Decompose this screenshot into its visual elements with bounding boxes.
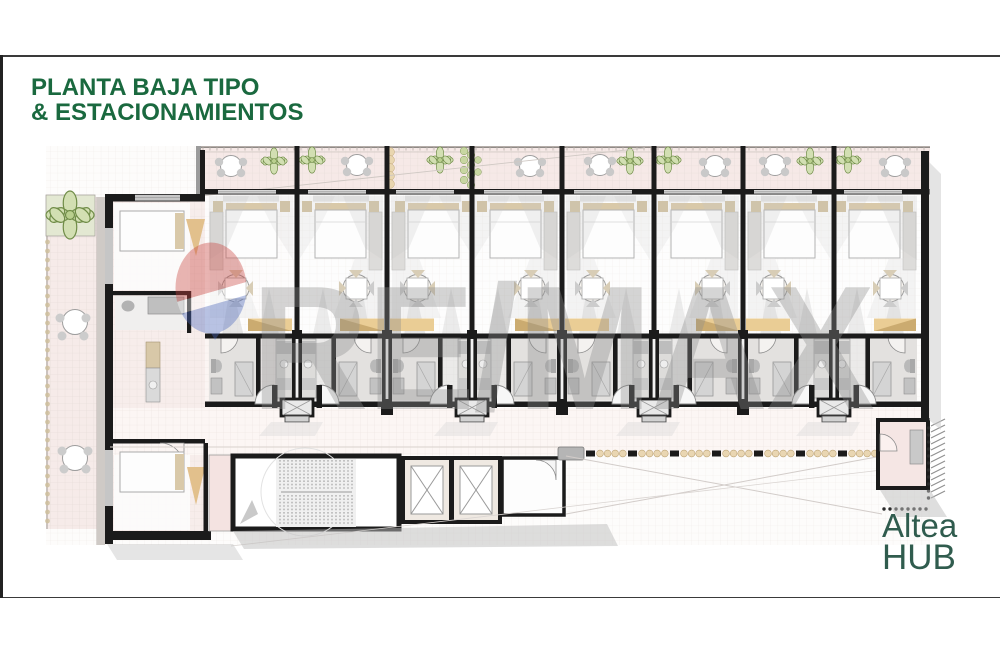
svg-text:RE/MAX: RE/MAX xyxy=(251,250,874,448)
